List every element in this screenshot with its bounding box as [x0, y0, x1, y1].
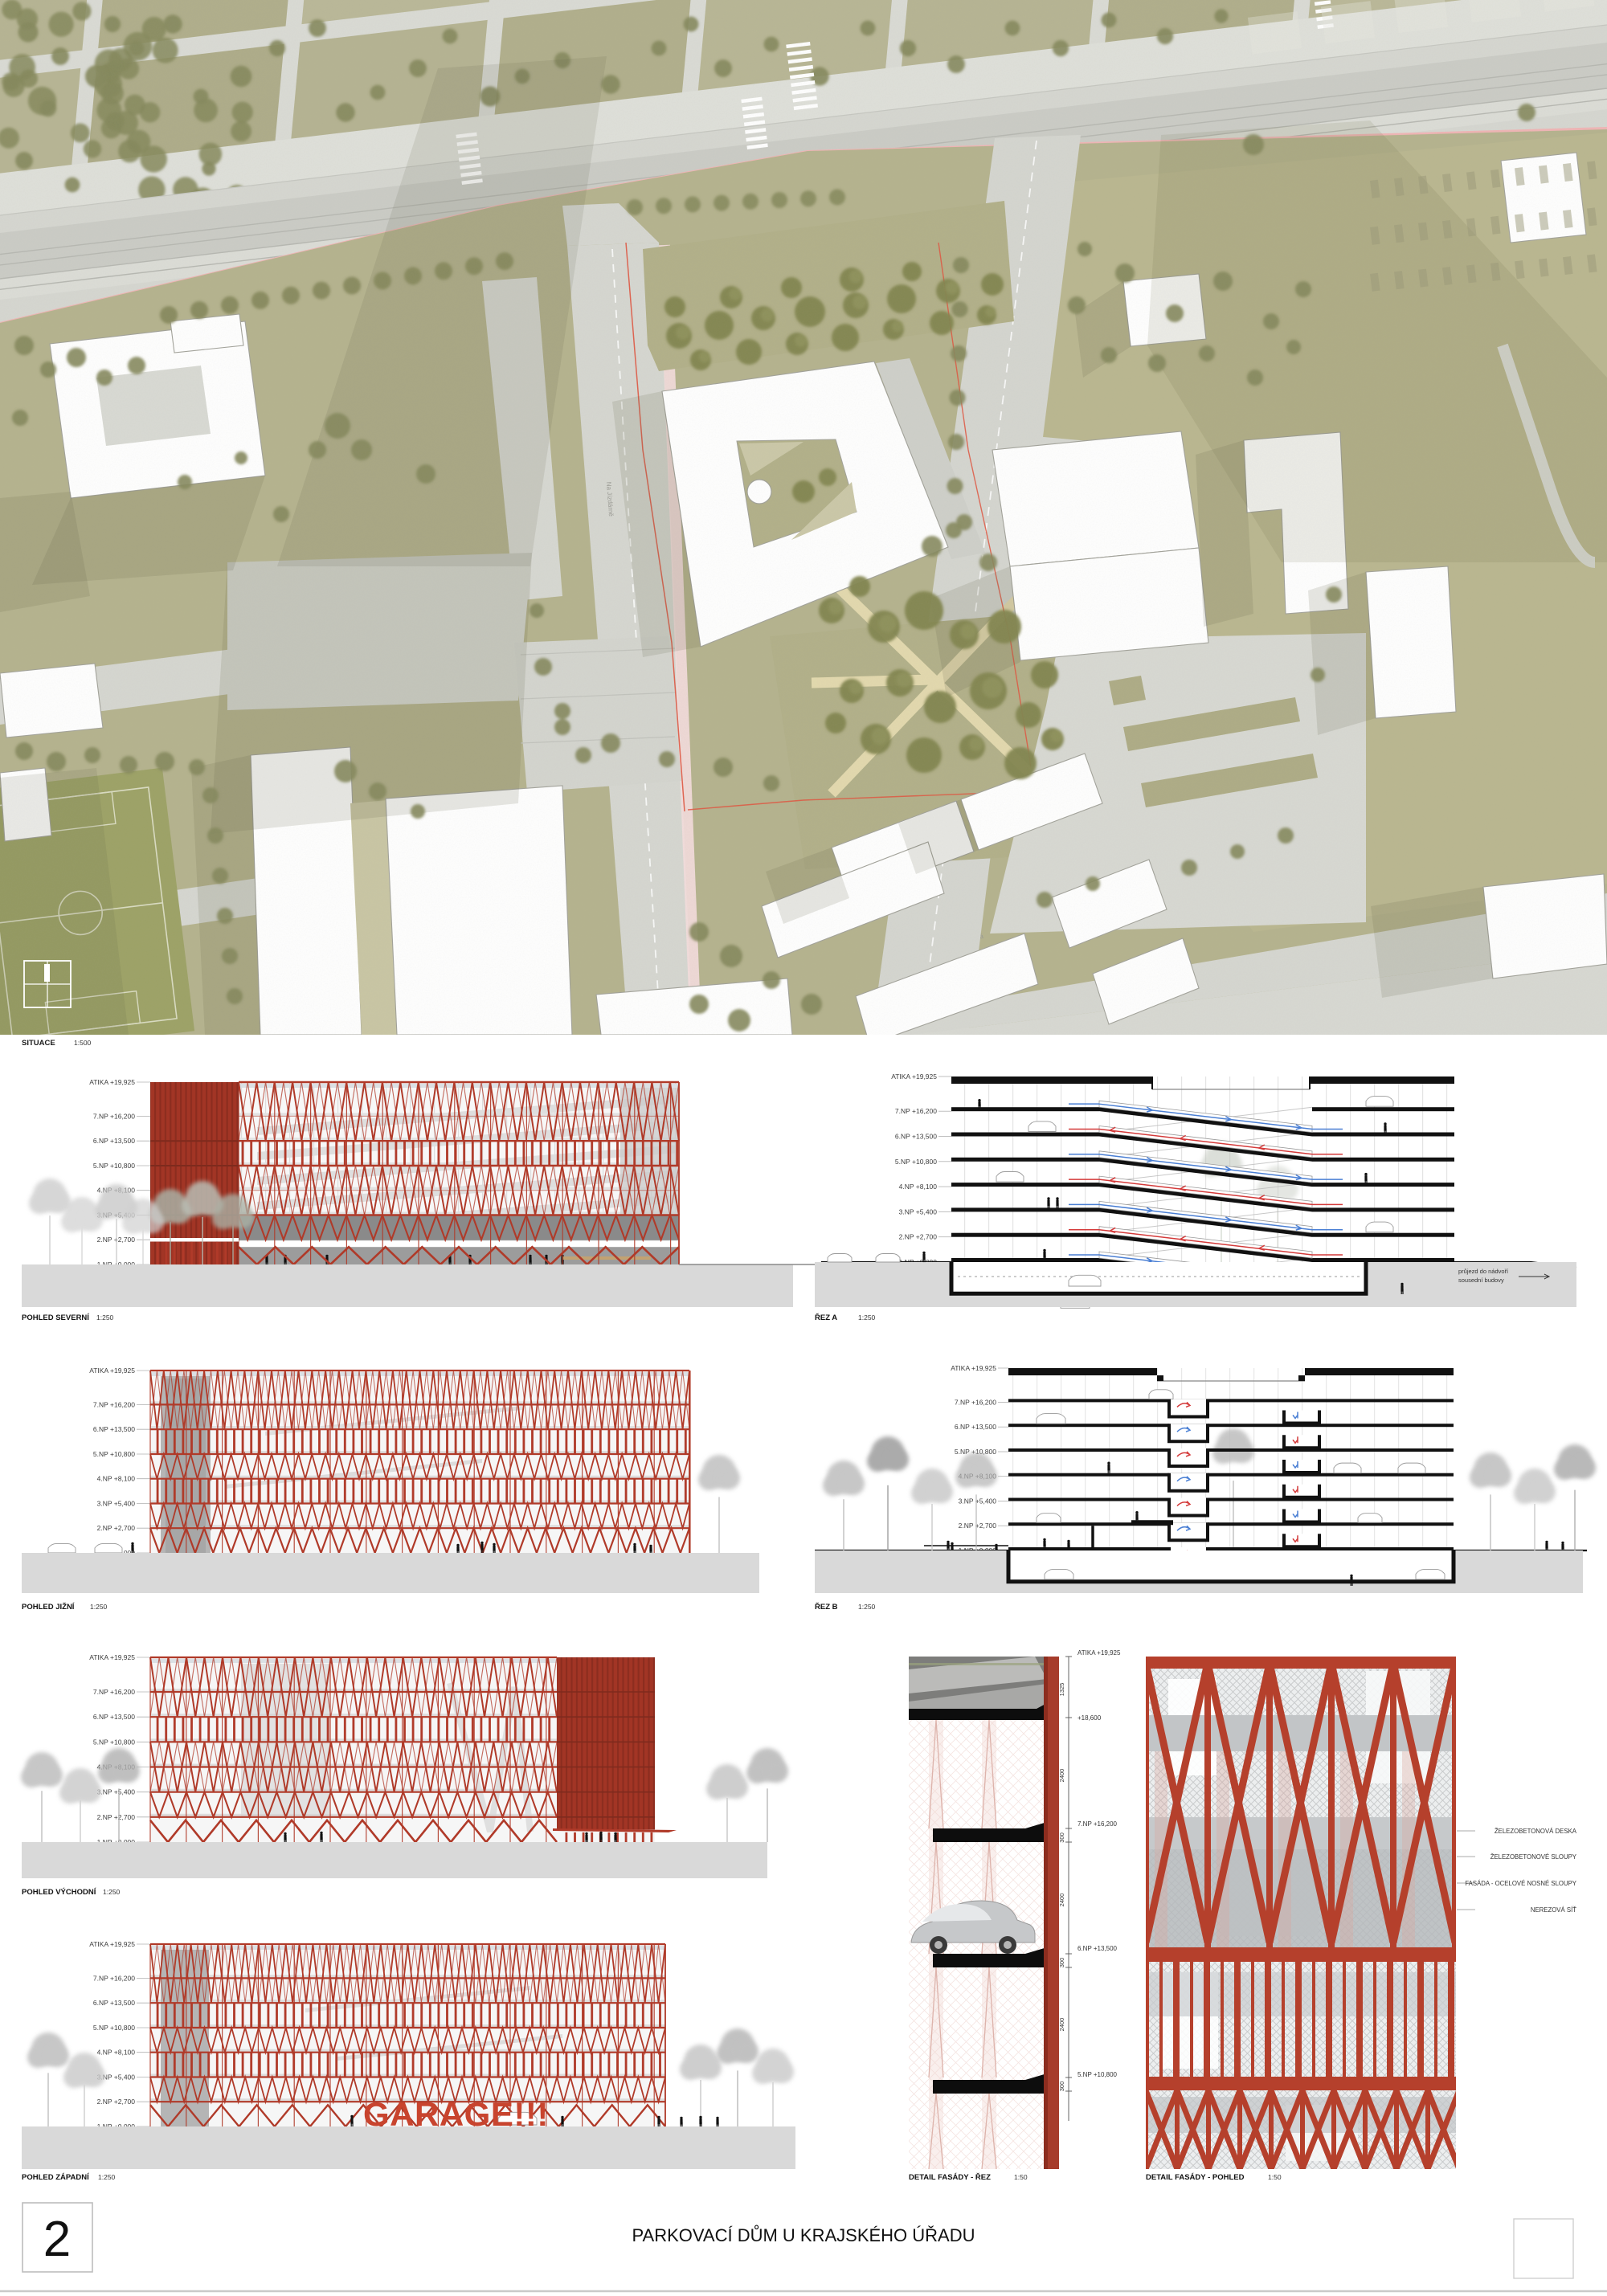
svg-text:5.NP +10,800: 5.NP +10,800	[93, 1450, 135, 1458]
svg-text:7.NP +16,200: 7.NP +16,200	[93, 1112, 135, 1120]
svg-text:300: 300	[1058, 1958, 1065, 1968]
svg-text:DETAIL FASÁDY - POHLED: DETAIL FASÁDY - POHLED	[1146, 2173, 1245, 2182]
svg-text:ATIKA +19,925: ATIKA +19,925	[89, 1367, 135, 1375]
svg-text:NEREZOVÁ SÍŤ: NEREZOVÁ SÍŤ	[1531, 1906, 1576, 1914]
svg-text:2.NP +2,700: 2.NP +2,700	[899, 1233, 938, 1241]
svg-text:5.NP +10,800: 5.NP +10,800	[93, 2024, 135, 2032]
svg-text:5.NP +10,800: 5.NP +10,800	[93, 1738, 135, 1746]
svg-text:4.NP +8,100: 4.NP +8,100	[97, 2049, 136, 2057]
svg-text:ŽELEZOBETONOVÁ DESKA: ŽELEZOBETONOVÁ DESKA	[1495, 1828, 1577, 1835]
svg-text:2: 2	[43, 2212, 71, 2267]
svg-text:2.NP +2,700: 2.NP +2,700	[959, 1522, 997, 1530]
svg-text:POHLED VÝCHODNÍ: POHLED VÝCHODNÍ	[22, 1887, 96, 1897]
svg-text:6.NP +13,500: 6.NP +13,500	[955, 1423, 996, 1431]
svg-text:1:250: 1:250	[96, 1313, 114, 1322]
svg-text:+18,600: +18,600	[1077, 1714, 1102, 1722]
svg-text:6.NP +13,500: 6.NP +13,500	[93, 1137, 135, 1145]
svg-text:3.NP +5,400: 3.NP +5,400	[97, 1500, 136, 1508]
svg-text:ATIKA +19,925: ATIKA +19,925	[1077, 1649, 1121, 1657]
svg-text:7.NP +16,200: 7.NP +16,200	[93, 1974, 135, 1982]
svg-text:ŽELEZOBETONOVÉ SLOUPY: ŽELEZOBETONOVÉ SLOUPY	[1490, 1853, 1577, 1861]
svg-text:2400: 2400	[1058, 1769, 1065, 1783]
svg-text:sousední budovy: sousední budovy	[1458, 1277, 1504, 1284]
svg-text:1:250: 1:250	[858, 1603, 876, 1611]
svg-text:300: 300	[1058, 2082, 1065, 2092]
svg-text:1325: 1325	[1058, 1683, 1065, 1697]
svg-text:FASÁDA - OCELOVÉ NOSNÉ SLOUPY: FASÁDA - OCELOVÉ NOSNÉ SLOUPY	[1465, 1880, 1576, 1887]
svg-text:ATIKA +19,925: ATIKA +19,925	[951, 1364, 996, 1372]
svg-text:ŘEZ B: ŘEZ B	[815, 1602, 838, 1612]
svg-text:7.NP +16,200: 7.NP +16,200	[93, 1688, 135, 1696]
svg-text:ATIKA +19,925: ATIKA +19,925	[89, 1653, 135, 1661]
svg-text:ŘEZ A: ŘEZ A	[815, 1313, 837, 1322]
svg-text:ATIKA +19,925: ATIKA +19,925	[891, 1072, 937, 1081]
svg-text:3.NP +5,400: 3.NP +5,400	[959, 1497, 997, 1505]
svg-text:průjezd do nádvoří: průjezd do nádvoří	[1458, 1268, 1509, 1275]
svg-text:1:50: 1:50	[1268, 2173, 1282, 2181]
svg-text:7.NP +16,200: 7.NP +16,200	[1077, 1820, 1118, 1828]
svg-text:7.NP +16,200: 7.NP +16,200	[93, 1400, 135, 1408]
svg-text:1:250: 1:250	[103, 1888, 121, 1896]
svg-text:5.NP +10,800: 5.NP +10,800	[93, 1162, 135, 1170]
svg-text:300: 300	[1058, 1832, 1065, 1843]
svg-text:3.NP +5,400: 3.NP +5,400	[97, 1788, 136, 1796]
svg-text:5.NP +10,800: 5.NP +10,800	[1077, 2071, 1118, 2078]
svg-text:1:250: 1:250	[98, 2173, 116, 2181]
svg-text:4.NP +8,100: 4.NP +8,100	[899, 1183, 938, 1191]
svg-text:6.NP +13,500: 6.NP +13,500	[93, 1425, 135, 1433]
svg-text:2.NP +2,700: 2.NP +2,700	[97, 1813, 136, 1821]
svg-text:DETAIL FASÁDY - ŘEZ: DETAIL FASÁDY - ŘEZ	[909, 2172, 991, 2182]
svg-text:ATIKA +19,925: ATIKA +19,925	[89, 1940, 135, 1948]
svg-text:1:500: 1:500	[74, 1039, 92, 1047]
svg-text:6.NP +13,500: 6.NP +13,500	[93, 1713, 135, 1721]
svg-text:SITUACE: SITUACE	[22, 1039, 55, 1048]
svg-text:POHLED ZÁPADNÍ: POHLED ZÁPADNÍ	[22, 2173, 89, 2182]
svg-text:1:250: 1:250	[858, 1313, 876, 1322]
svg-text:2.NP +2,700: 2.NP +2,700	[97, 1524, 136, 1532]
svg-text:POHLED JIŽNÍ: POHLED JIŽNÍ	[22, 1602, 75, 1612]
svg-text:2400: 2400	[1058, 1894, 1065, 1907]
svg-text:7.NP +16,200: 7.NP +16,200	[955, 1398, 996, 1406]
svg-text:3.NP +5,400: 3.NP +5,400	[899, 1207, 938, 1215]
svg-text:7.NP +16,200: 7.NP +16,200	[895, 1107, 937, 1115]
svg-text:1:50: 1:50	[1014, 2173, 1028, 2181]
svg-text:6.NP +13,500: 6.NP +13,500	[93, 1999, 135, 2007]
svg-text:6.NP +13,500: 6.NP +13,500	[895, 1133, 937, 1141]
svg-text:4.NP +8,100: 4.NP +8,100	[97, 1475, 136, 1483]
svg-text:1:250: 1:250	[90, 1603, 108, 1611]
svg-text:2400: 2400	[1058, 2018, 1065, 2032]
svg-text:POHLED SEVERNÍ: POHLED SEVERNÍ	[22, 1313, 89, 1322]
svg-text:5.NP +10,800: 5.NP +10,800	[895, 1158, 937, 1166]
svg-text:ATIKA +19,925: ATIKA +19,925	[89, 1078, 135, 1086]
svg-text:6.NP +13,500: 6.NP +13,500	[1077, 1945, 1118, 1952]
svg-text:2.NP +2,700: 2.NP +2,700	[97, 2098, 136, 2106]
svg-text:PARKOVACÍ DŮM U KRAJSKÉHO ÚŘAD: PARKOVACÍ DŮM U KRAJSKÉHO ÚŘADU	[632, 2225, 975, 2245]
